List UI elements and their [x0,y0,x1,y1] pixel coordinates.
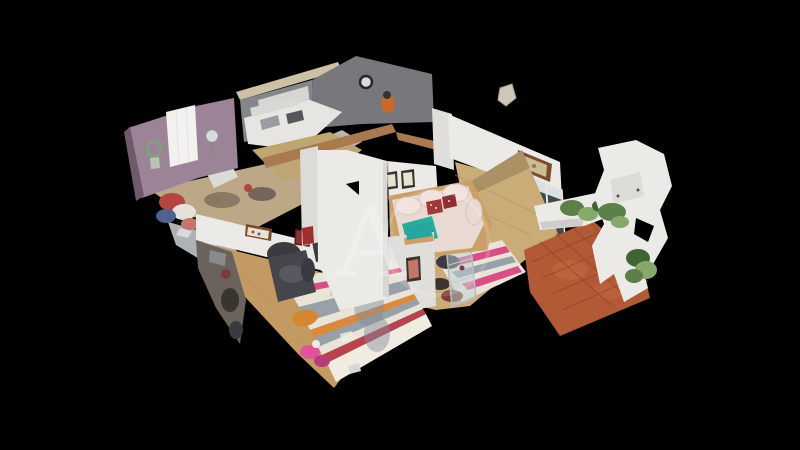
wall-speck [637,189,640,192]
wall-clock [360,76,372,88]
dark-shelf-object [229,321,243,339]
mirror-medallion [532,164,536,168]
wall-speck [617,195,620,198]
desk-clutter [204,192,240,208]
desk-red-object [244,184,252,192]
dark-shelf-object [221,288,239,312]
white-object [312,340,320,348]
art-detail [252,231,255,234]
pillow-pattern-dot [430,204,432,206]
desk-clutter [248,187,276,201]
standing-fan [206,130,219,143]
red-shelf-object [221,269,231,279]
armchair-arm [301,258,315,282]
pillow-pattern-dot [435,207,437,209]
viewer-canvas: A [0,0,800,450]
watermark-letter: A [335,186,407,299]
large-plant [625,269,643,283]
armchair-cushion [279,265,305,283]
clothes-pile-blue [156,209,176,223]
wall-small-frame [150,157,160,169]
office-window [166,105,198,167]
art-detail [258,233,261,236]
pillow-pattern-dot [448,200,450,202]
tile-highlight-patch [552,260,588,280]
dark-object [383,91,391,99]
hanging-plant [611,216,629,228]
small-picture-art [408,259,419,279]
shelf-trinket [460,266,465,271]
picture-art [403,172,413,186]
red-wardrobe [302,226,314,245]
pink-clothing [314,355,330,367]
ghost-body [364,316,390,352]
dollhouse-3d-view[interactable]: A [0,0,800,450]
